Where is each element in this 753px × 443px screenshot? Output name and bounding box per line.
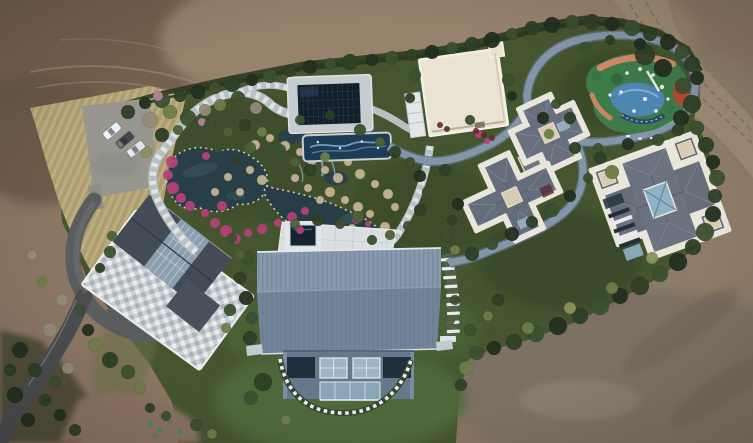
aerial-photo <box>0 0 753 443</box>
aerial-photo-frame <box>0 0 753 443</box>
photo-vignette <box>0 0 753 443</box>
